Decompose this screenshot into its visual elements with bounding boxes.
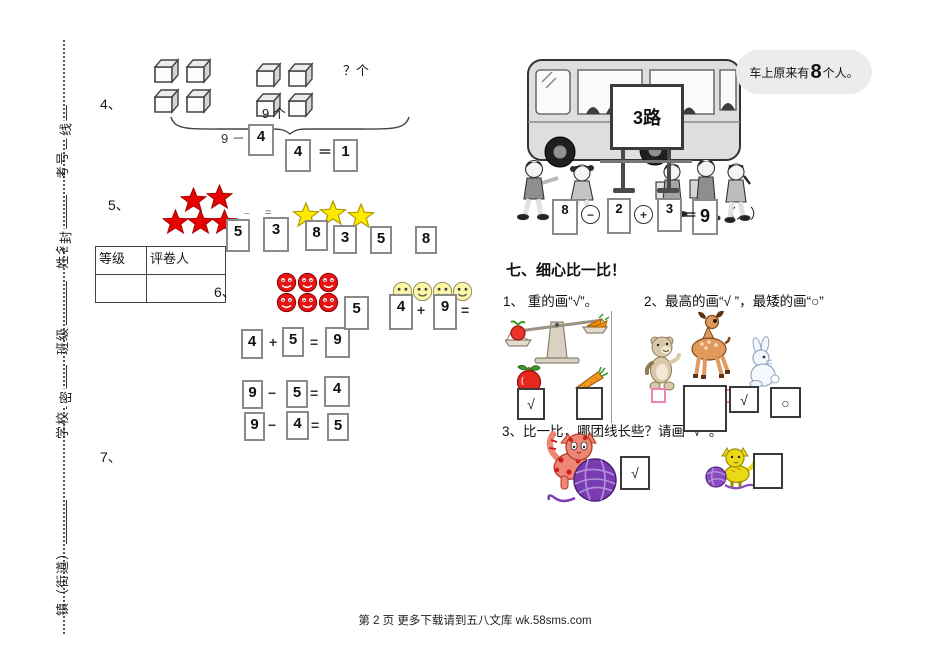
q6-number: 6、 — [214, 282, 236, 302]
q6-r3-b[interactable]: 4 — [286, 411, 309, 440]
bus-route-sign: 3路 — [610, 84, 684, 150]
q6-r3-c[interactable]: 5 — [327, 413, 349, 441]
q6-r1-c[interactable]: 9 — [325, 327, 350, 358]
cube-icon — [286, 61, 316, 89]
q6-r2-b[interactable]: 5 — [286, 380, 308, 408]
q6-r3-eq: = — [311, 417, 319, 433]
q5-number: 5、 — [108, 195, 130, 215]
field-town: 镇（街道） — [52, 500, 71, 616]
section7-q2-label: 2、最高的画“√ ”，最矮的画“○” — [644, 290, 824, 310]
red-smiley-icon — [318, 272, 339, 293]
worksheet-page: 考号 姓名 班级 学校 镇（街道） 线 封 密 4、 — [0, 0, 950, 671]
q6-top-box-a[interactable]: 4 — [389, 294, 413, 330]
q5-answer-box-3[interactable]: 8 — [305, 220, 328, 251]
red-star-icon — [162, 209, 189, 235]
q1-check-box-2[interactable] — [576, 387, 603, 420]
bus-box-c[interactable]: 3 — [657, 198, 682, 232]
q6-float-box[interactable]: 5 — [344, 296, 369, 330]
q6-r2-c[interactable]: 4 — [324, 376, 350, 407]
bubble-number: 8 — [810, 61, 821, 84]
red-cat-illustration — [543, 428, 625, 506]
red-smiley-icon — [276, 292, 297, 313]
seal-char-feng: 封 — [56, 229, 75, 247]
q6-top-equals: = — [461, 302, 469, 318]
cube-icon — [184, 87, 214, 115]
cube-icon — [254, 61, 284, 89]
write-line[interactable] — [62, 500, 67, 544]
balance-scale-illustration — [505, 312, 609, 368]
q5-answer-box-5[interactable]: 5 — [370, 226, 392, 254]
q4-equals: ＝ — [318, 142, 332, 162]
q6-r1-eq: = — [310, 334, 318, 350]
q4-answer-box-a[interactable]: 4 — [248, 124, 274, 156]
q7-number: 7、 — [100, 447, 122, 467]
q4-question-count: ？个 — [343, 60, 369, 79]
grading-col-grader: 评卷人 — [147, 247, 226, 275]
bus-equals: ＝ — [683, 205, 697, 225]
seal-char-line: 线 — [56, 121, 75, 139]
q5-answer-box-2[interactable]: 3 — [263, 217, 289, 252]
grading-cell-empty[interactable] — [96, 275, 147, 303]
red-star-icon — [187, 209, 214, 235]
q5-answer-box-1[interactable]: 5 — [226, 219, 250, 252]
q4-number: 4、 — [100, 94, 122, 114]
q6-top-plus: + — [417, 302, 425, 318]
grading-col-grade: 等级 — [96, 247, 147, 275]
red-star-icon — [206, 184, 233, 210]
circled-plus: + — [634, 205, 653, 224]
q5-answer-box-6[interactable]: 8 — [415, 226, 437, 254]
q1-check-box-1[interactable]: √ — [517, 388, 545, 420]
cube-icon — [152, 87, 182, 115]
q2-check-box-2[interactable]: √ — [729, 386, 759, 413]
bus-box-a[interactable]: 8 — [552, 199, 578, 235]
red-smiley-icon — [297, 292, 318, 313]
sign-post-left — [621, 150, 625, 190]
q6-r2-op: − — [268, 385, 276, 401]
q6-red-smileys — [276, 272, 339, 312]
q2-check-box-1[interactable] — [683, 385, 727, 432]
section7-q1-label: 1、 重的画“√”。 — [503, 290, 598, 310]
red-smiley-icon — [318, 292, 339, 313]
seal-char-mi: 密 — [56, 389, 75, 407]
underbrace — [168, 114, 412, 136]
sign-rail — [600, 160, 692, 163]
bubble-prefix: 车上原来有 — [749, 64, 809, 81]
sign-post-right — [667, 150, 671, 190]
cube-icon — [152, 57, 182, 85]
sign-foot-right — [657, 188, 679, 193]
pink-check-box-1[interactable] — [651, 388, 666, 403]
q6-r2-eq: = — [310, 385, 318, 401]
cube-icon — [184, 57, 214, 85]
field-class: 班级 — [52, 281, 71, 355]
q4-answer-box-c[interactable]: 1 — [333, 139, 358, 172]
q4-minuend: 9 － — [221, 128, 245, 147]
q3-check-box-1[interactable]: √ — [620, 456, 650, 490]
red-smiley-icon — [297, 272, 318, 293]
q6-r2-a[interactable]: 9 — [242, 380, 263, 409]
q6-r1-op: + — [269, 334, 277, 350]
q3-check-box-2[interactable] — [753, 453, 783, 489]
q4-cubes-left — [152, 57, 216, 117]
q6-r1-b[interactable]: 5 — [282, 327, 304, 357]
speech-bubble: 车上原来有8个人。 — [736, 50, 872, 94]
field-exam-number: 考号 — [52, 105, 71, 179]
sign-foot-left — [613, 188, 635, 193]
red-smiley-icon — [276, 272, 297, 293]
section7-heading: 七、细心比一比！ — [506, 259, 626, 280]
q5-answer-box-4[interactable]: 3 — [333, 225, 357, 254]
q6-r3-a[interactable]: 9 — [244, 412, 265, 441]
q4-answer-box-b[interactable]: 4 — [285, 139, 311, 172]
q6-top-box-b[interactable]: 9 — [433, 294, 457, 330]
bus-box-b[interactable]: 2 — [607, 198, 631, 234]
grading-table: 等级 评卷人 — [95, 246, 226, 303]
q6-r1-a[interactable]: 4 — [241, 329, 263, 359]
circled-minus: − — [581, 205, 600, 224]
image-divider — [611, 311, 612, 423]
deer-illustration — [678, 311, 742, 379]
q6-r3-op: − — [268, 417, 276, 433]
yellow-smiley-icon — [412, 281, 433, 302]
q2-check-box-3[interactable]: ○ — [770, 387, 801, 418]
yellow-cat-illustration — [704, 444, 760, 492]
rabbit-illustration — [744, 336, 782, 390]
write-line[interactable] — [62, 281, 67, 325]
page-footer: 第 2 页 更多下载请到五八文库 wk.58sms.com — [0, 612, 950, 628]
bubble-suffix: 个人。 — [823, 64, 859, 81]
